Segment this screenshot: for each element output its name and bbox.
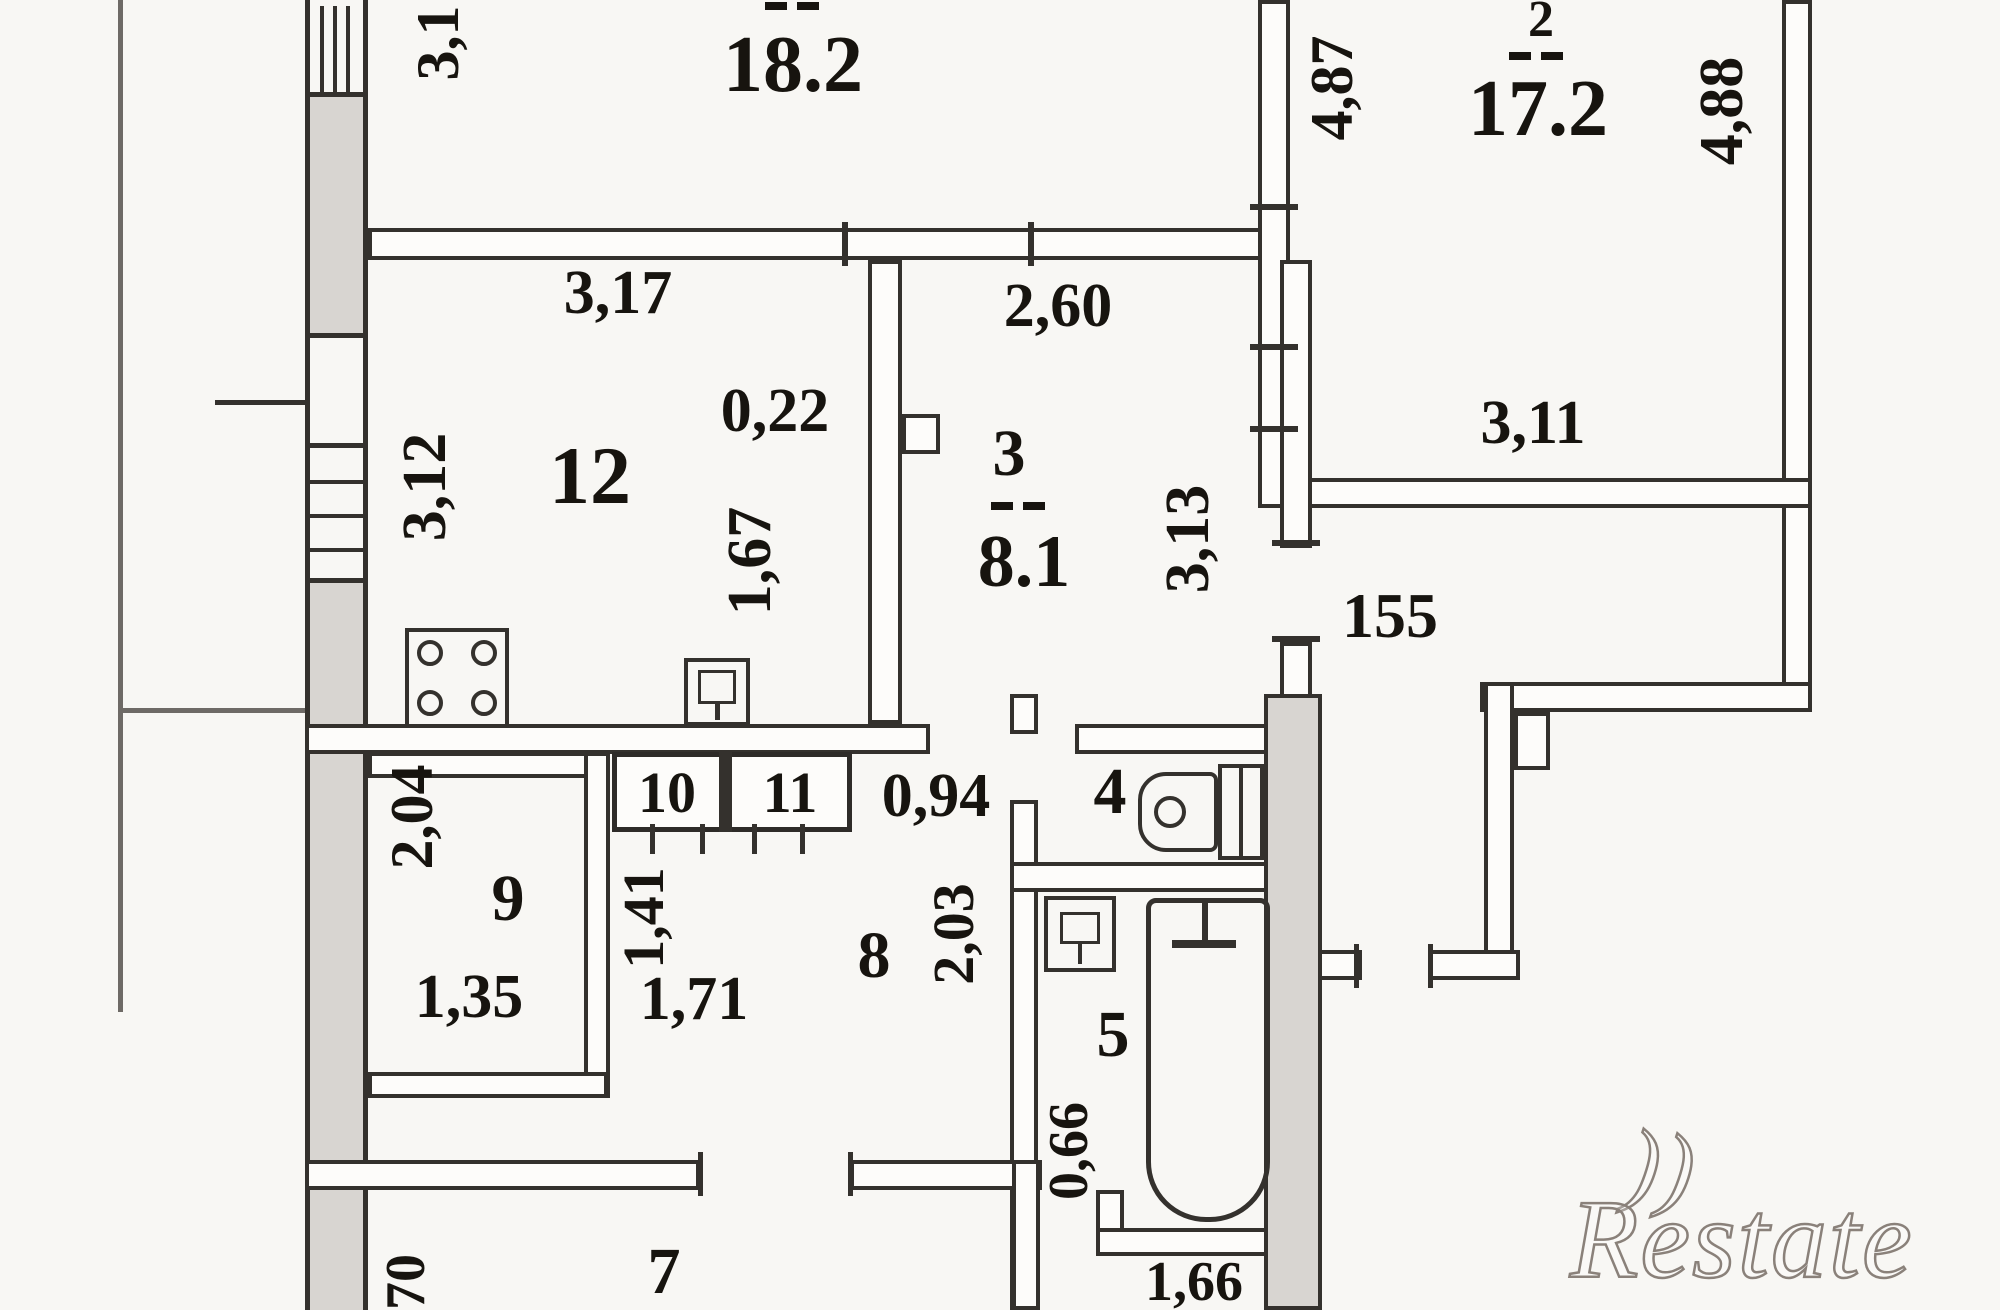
wall	[310, 95, 363, 335]
wall	[1290, 478, 1812, 508]
dimension-label: 3,11	[1440, 380, 1626, 466]
dimension-label: 70	[378, 1252, 434, 1310]
window-pane	[346, 6, 350, 92]
kitchen-sink-drain	[715, 704, 720, 720]
dimension-label: 4,88	[1605, 73, 1839, 149]
dimension-label: 3,13	[1087, 497, 1289, 581]
shaft-wall	[1264, 694, 1322, 1310]
wall-tick	[1428, 944, 1433, 988]
wall	[1012, 1160, 1040, 1310]
dimension-label: 1,67	[661, 523, 839, 599]
floorplan: 18.2 2 17.2 3 8.1 12 10 11 9 8 4 5 7 3,1…	[0, 0, 2000, 1310]
wall-tick	[848, 1152, 853, 1196]
room-number-label: 7	[632, 1234, 696, 1310]
kitchen-sink-basin	[698, 670, 736, 704]
dimension-label: 0,94	[860, 752, 1012, 840]
dimension-label: 0,66	[1004, 1120, 1134, 1182]
dimension-label: 3,12	[336, 452, 514, 522]
stove-burner	[471, 690, 497, 716]
dimension-label: 4,87	[1238, 52, 1426, 124]
wall	[868, 260, 902, 724]
fraction-bar	[762, 0, 822, 12]
wall-tick	[1354, 944, 1359, 988]
toilet-tank-line	[1239, 768, 1243, 856]
dimension-label: 155	[1314, 574, 1466, 658]
wall	[1010, 694, 1038, 734]
room-number-label: 5	[1084, 988, 1142, 1082]
room-area-label: 8.1	[946, 512, 1102, 612]
dimension-label: 1,35	[388, 954, 550, 1040]
dimension-label: 2,60	[968, 260, 1148, 352]
wall-tick	[1272, 636, 1320, 642]
balcony-left-line	[118, 0, 123, 1012]
wall	[1010, 862, 1292, 892]
wall	[1514, 712, 1550, 770]
stove-icon	[405, 628, 509, 728]
room-number-label: 10	[616, 754, 718, 832]
wall-tick	[305, 443, 368, 448]
wall	[902, 414, 940, 454]
dimension-extension-line	[215, 400, 307, 405]
stove-burner	[417, 640, 443, 666]
dimension-label: 1,41	[568, 886, 720, 950]
washbasin-icon	[1044, 896, 1116, 972]
wall	[363, 0, 368, 1310]
room-number-label: 12	[534, 428, 646, 524]
wall-tick	[842, 222, 848, 266]
dimension-label: 1,66	[1102, 1254, 1286, 1310]
wall	[305, 724, 930, 754]
fraction-bar	[988, 500, 1048, 512]
dimension-label: 3,17	[530, 248, 706, 338]
wall	[305, 1160, 700, 1190]
washbasin-drain	[1078, 944, 1082, 964]
wall-tick	[305, 333, 368, 338]
wall	[1480, 682, 1812, 712]
room-area-label: 18.2	[688, 14, 898, 116]
wall	[1428, 950, 1520, 980]
balcony-bottom-line	[118, 708, 310, 713]
dimension-label: 0,22	[690, 368, 860, 454]
wall	[368, 228, 1290, 260]
room-number-label: 4	[1078, 746, 1142, 838]
room-area-label: 17.2	[1446, 60, 1630, 158]
wall	[310, 580, 363, 1310]
room-number-label: 9	[476, 856, 540, 942]
dimension-label: 3,1	[387, 11, 489, 75]
wall-tick	[1250, 426, 1298, 432]
wall-tick	[305, 92, 368, 97]
wall	[368, 1072, 608, 1098]
wall-tick	[1250, 344, 1298, 350]
dimension-label: 2,04	[331, 785, 493, 849]
wall-tick	[698, 1152, 703, 1196]
window-pane	[333, 6, 337, 92]
wall-tick	[305, 578, 368, 583]
watermark-crescent-icon: ))	[1621, 1106, 1704, 1225]
dimension-label: 2,03	[878, 900, 1030, 968]
watermark: )) Restate	[1570, 1118, 2000, 1310]
bathtub-faucet-bar	[1172, 940, 1236, 948]
stove-burner	[471, 640, 497, 666]
room-number-label: 3	[980, 412, 1038, 496]
wall-tick	[1250, 204, 1298, 210]
dimension-label: 1,71	[618, 958, 770, 1040]
stove-burner	[417, 690, 443, 716]
closet-divider	[719, 752, 732, 832]
window-pane	[310, 548, 363, 552]
wall	[1484, 682, 1514, 980]
washbasin-bowl	[1060, 912, 1100, 944]
bathtub-faucet-stem	[1202, 900, 1208, 944]
room-number-label: 2	[1510, 0, 1572, 48]
room-number-label: 11	[732, 754, 848, 832]
kitchen-sink-icon	[684, 658, 750, 726]
toilet-bowl-circle	[1154, 796, 1186, 828]
window-pane	[320, 6, 324, 92]
watermark-text: Restate	[1570, 1176, 1914, 1305]
